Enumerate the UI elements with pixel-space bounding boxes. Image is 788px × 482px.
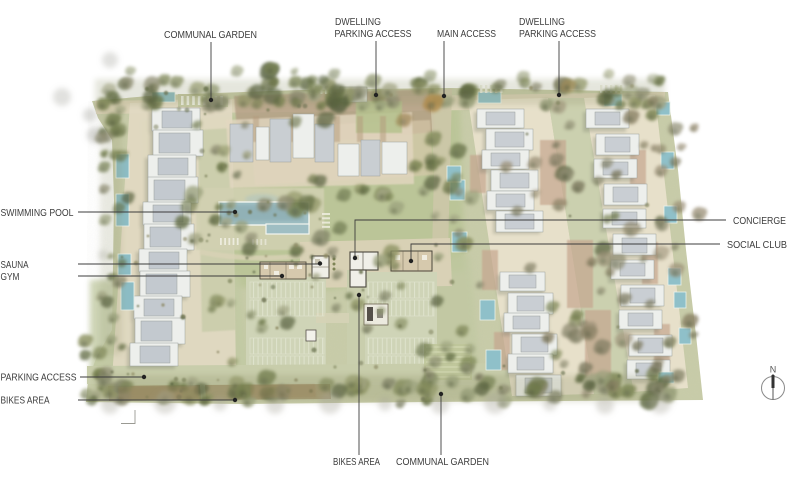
svg-text:CONCIERGE: CONCIERGE <box>733 216 786 227</box>
svg-text:SWIMMING POOL: SWIMMING POOL <box>1 208 74 219</box>
svg-text:DWELLING: DWELLING <box>519 17 565 28</box>
svg-text:DWELLING: DWELLING <box>335 17 381 28</box>
svg-text:PARKING ACCESS: PARKING ACCESS <box>1 373 77 384</box>
svg-text:PARKING ACCESS: PARKING ACCESS <box>335 29 412 40</box>
svg-text:BIKES AREA: BIKES AREA <box>1 396 50 407</box>
svg-text:MAIN ACCESS: MAIN ACCESS <box>437 29 496 40</box>
svg-text:COMMUNAL GARDEN: COMMUNAL GARDEN <box>396 457 489 468</box>
svg-text:BIKES AREA: BIKES AREA <box>333 457 380 468</box>
svg-text:COMMUNAL GARDEN: COMMUNAL GARDEN <box>164 30 257 41</box>
svg-text:PARKING ACCESS: PARKING ACCESS <box>519 29 596 40</box>
svg-text:SAUNA: SAUNA <box>1 260 29 271</box>
svg-text:SOCIAL CLUB: SOCIAL CLUB <box>727 240 787 251</box>
svg-text:GYM: GYM <box>1 272 20 283</box>
svg-text:N: N <box>770 365 777 375</box>
